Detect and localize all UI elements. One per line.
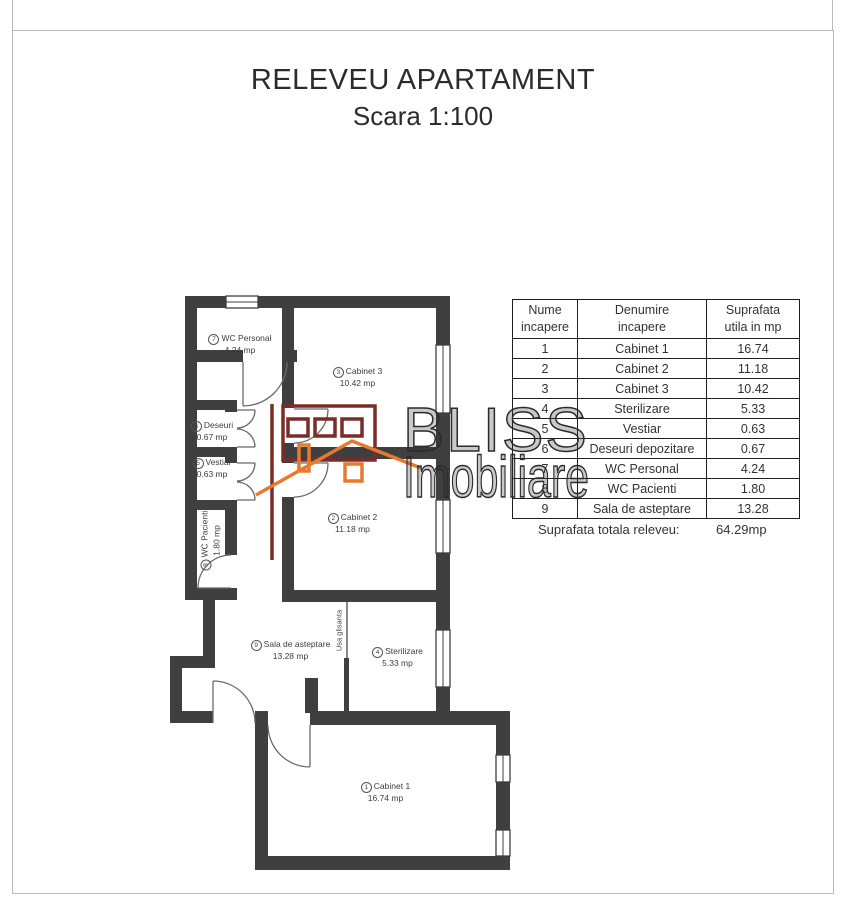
room-number-badge: 6 [191, 421, 202, 432]
room-number-badge: 9 [251, 640, 262, 651]
table-header-row: Numeincapere Denumireincapere Suprafatau… [513, 300, 800, 339]
sliding-door-label: Usa glisanta [334, 591, 345, 671]
room-name: Deseuri [204, 420, 233, 430]
room-label-cabinet-2: 2Cabinet 2 11.18 mp [295, 512, 410, 535]
room-label-vestiar: 5Vestiar 0.63 mp [168, 457, 256, 480]
table-row: 1Cabinet 116.74 [513, 339, 800, 359]
room-number-badge: 2 [328, 513, 339, 524]
watermark-brand-subname: Imobiliare [403, 449, 589, 507]
room-area: 0.63 mp [168, 469, 256, 480]
room-name: Vestiar [206, 457, 232, 467]
room-name: Cabinet 1 [374, 781, 410, 791]
room-name: Cabinet 2 [341, 512, 377, 522]
col-header-denumire: Denumireincapere [578, 300, 707, 339]
room-label-wc-personal: 7WC Personal 4.24 mp [185, 333, 295, 356]
room-area: 11.18 mp [295, 524, 410, 535]
room-name: WC Pacienti [200, 511, 210, 558]
room-number-badge: 7 [208, 334, 219, 345]
room-area: 4.24 mp [185, 345, 295, 356]
col-header-nume: Numeincapere [513, 300, 578, 339]
watermark-house-logo-icon [256, 404, 421, 560]
room-label-wc-pacienti: 8WC Pacienti 1.80 mp [200, 501, 223, 581]
room-number-badge: 3 [333, 367, 344, 378]
room-number-badge: 5 [193, 458, 204, 469]
room-area: 5.33 mp [340, 658, 455, 669]
room-label-cabinet-1: 1Cabinet 1 16.74 mp [328, 781, 443, 804]
room-label-cabinet-3: 3Cabinet 3 10.42 mp [300, 366, 415, 389]
table-row: 2Cabinet 211.18 [513, 359, 800, 379]
room-area: 10.42 mp [300, 378, 415, 389]
total-area-label: Suprafata totala releveu: [538, 522, 680, 537]
col-header-suprafata: Suprafatautila in mp [707, 300, 800, 339]
room-area: 1.80 mp [212, 501, 223, 581]
room-name: Sterilizare [385, 646, 423, 656]
room-name: WC Personal [221, 333, 271, 343]
room-name: Sala de asteptare [264, 639, 331, 649]
room-label-sterilizare: 4Sterilizare 5.33 mp [340, 646, 455, 669]
room-number-badge: 1 [361, 782, 372, 793]
room-number-badge: 4 [372, 647, 383, 658]
room-area: 16.74 mp [328, 793, 443, 804]
room-number-badge: 8 [201, 559, 212, 570]
room-label-deseuri: 6Deseuri 0.67 mp [168, 420, 256, 443]
total-area-value: 64.29mp [716, 522, 767, 537]
room-area: 0.67 mp [168, 432, 256, 443]
room-name: Cabinet 3 [346, 366, 382, 376]
